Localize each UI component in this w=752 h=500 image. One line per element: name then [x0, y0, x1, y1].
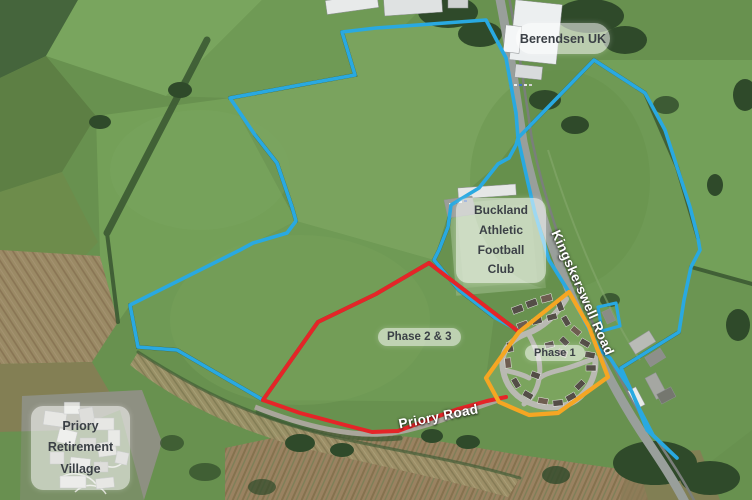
berendsen-text: Berendsen UK	[520, 32, 606, 46]
phase23-text: Phase 2 & 3	[387, 331, 452, 343]
buckland-line-3: Club	[488, 260, 515, 280]
phase1-text: Phase 1	[534, 347, 576, 359]
label-priory-retirement-village: Priory Retirement Village	[31, 406, 130, 490]
priory-village-line-1: Priory	[62, 416, 98, 437]
label-phase-1: Phase 1	[525, 345, 585, 361]
label-phase-2-and-3: Phase 2 & 3	[378, 328, 461, 346]
label-buckland-athletic-football-club: Buckland Athletic Football Club	[456, 198, 546, 283]
buckland-line-1: Buckland	[474, 201, 528, 221]
aerial-map: Berendsen UK Buckland Athletic Football …	[0, 0, 752, 500]
label-berendsen-uk: Berendsen UK	[516, 23, 610, 54]
priory-village-line-3: Village	[60, 459, 100, 480]
priory-village-line-2: Retirement	[48, 437, 113, 458]
buckland-line-2: Athletic Football	[456, 221, 546, 261]
